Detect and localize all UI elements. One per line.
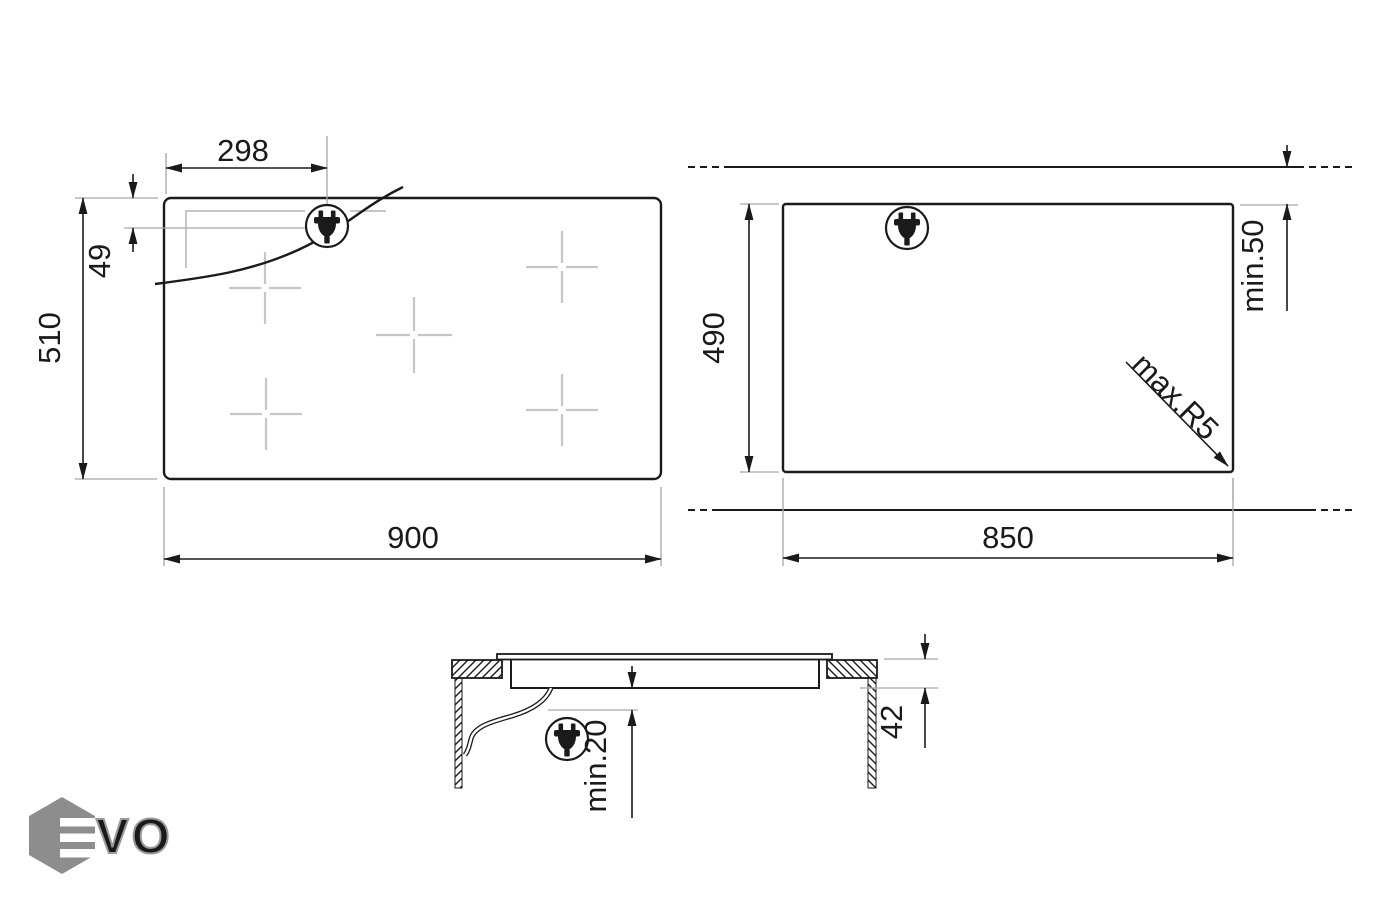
hob-glass-section bbox=[497, 654, 832, 660]
evo-logo: VO bbox=[29, 797, 173, 874]
hob-top-view bbox=[75, 136, 661, 566]
hob-body-section bbox=[511, 659, 819, 688]
power-cord bbox=[465, 688, 551, 755]
dim-490 bbox=[740, 204, 779, 472]
cutout-outline bbox=[783, 204, 1233, 472]
dim-label-850: 850 bbox=[982, 520, 1034, 555]
dim-label-42: 42 bbox=[874, 705, 909, 739]
logo-vo-letters: VO bbox=[96, 810, 173, 864]
drawing-linework: 298 49 510 900 490 min.50 max.R5 850 min… bbox=[0, 0, 1381, 900]
dim-label-900: 900 bbox=[387, 520, 439, 555]
dim-label-510: 510 bbox=[32, 312, 67, 364]
logo-e-bars bbox=[60, 818, 97, 858]
installation-drawing: 298 49 510 900 490 min.50 max.R5 850 min… bbox=[0, 0, 1381, 900]
worktop-cutout-view bbox=[688, 145, 1352, 566]
hob-outline bbox=[164, 198, 661, 479]
worktop-section-right bbox=[827, 660, 877, 678]
dim-510 bbox=[75, 198, 157, 479]
power-plug-icon bbox=[886, 207, 928, 249]
dim-label-490: 490 bbox=[696, 312, 731, 364]
dim-label-49: 49 bbox=[82, 244, 117, 278]
side-profile-view bbox=[452, 634, 938, 818]
dim-label-min50: min.50 bbox=[1235, 219, 1270, 312]
dim-label-298: 298 bbox=[217, 133, 269, 168]
cabinet-wall-left bbox=[455, 678, 462, 788]
dim-label-min20: min.20 bbox=[578, 719, 613, 812]
worktop-section-left bbox=[452, 660, 502, 678]
power-plug-icon bbox=[306, 205, 348, 247]
